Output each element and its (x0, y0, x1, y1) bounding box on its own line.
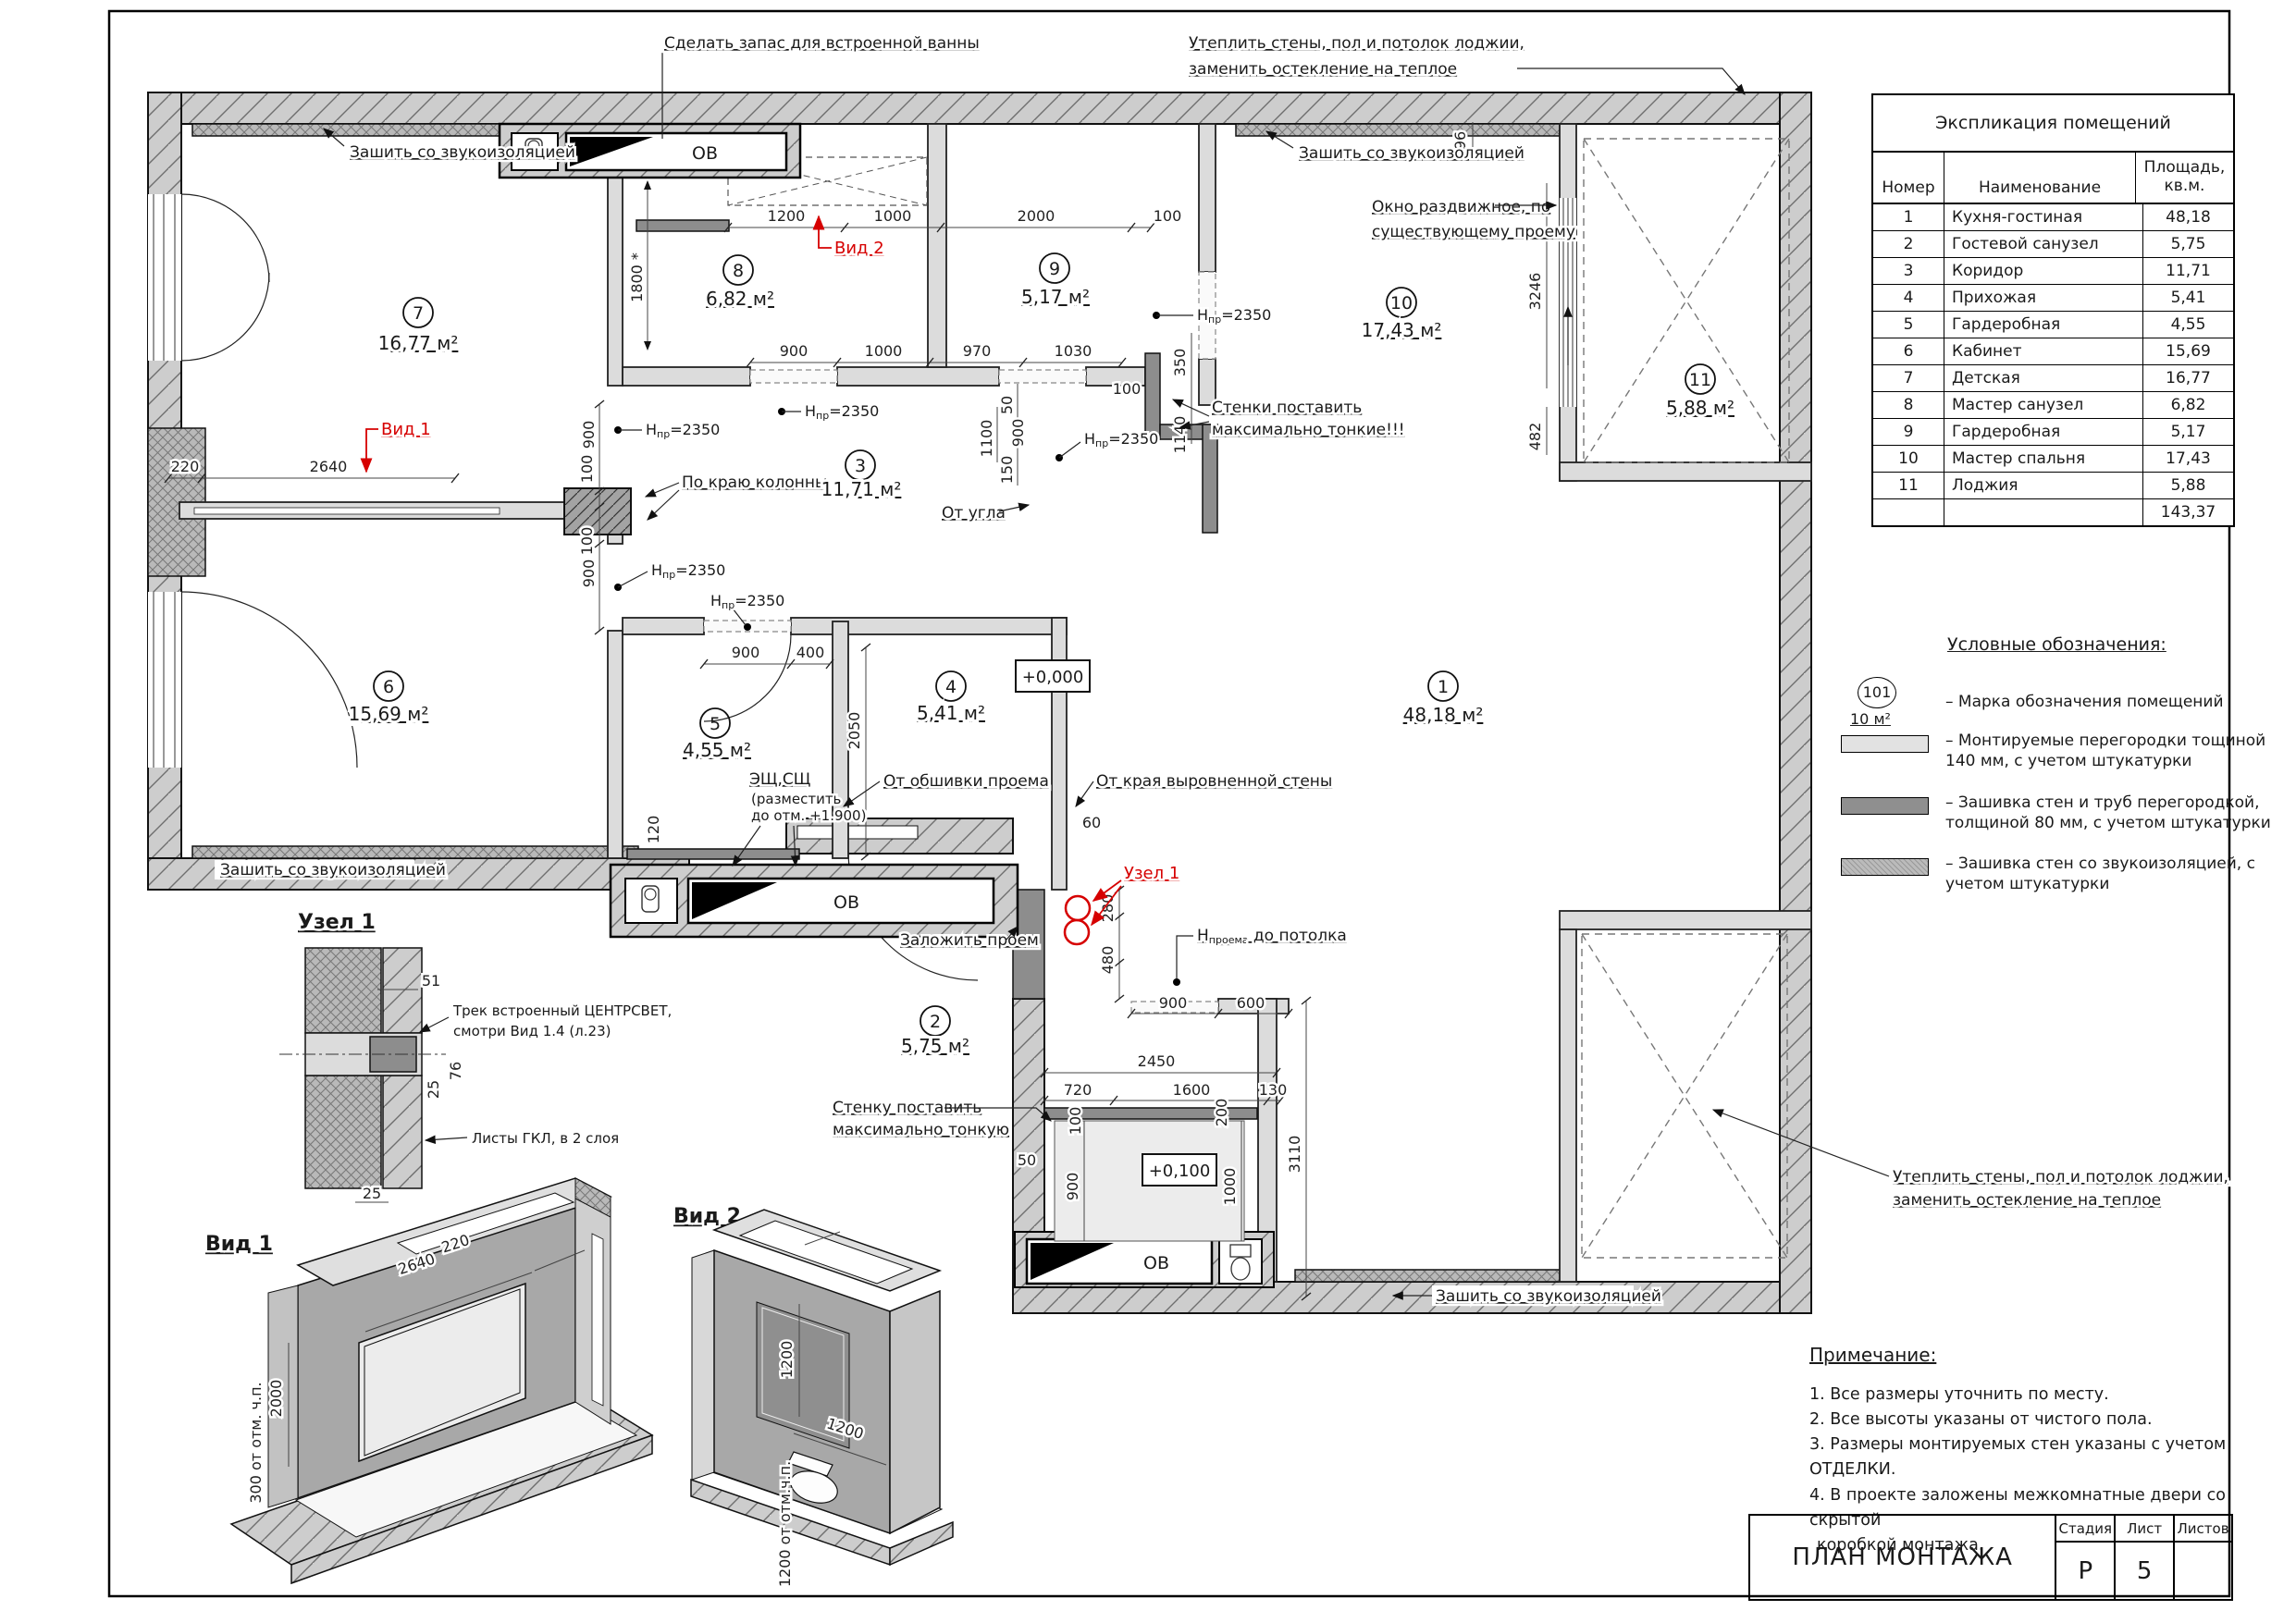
row-name: Гардеробная (1944, 312, 2143, 338)
view1-title: Вид 1 (205, 1233, 273, 1256)
row-name: Гардеробная (1944, 419, 2143, 445)
annotation-from-edge: От края выровненной стены (1096, 772, 1332, 791)
table-row: 3Коридор11,71 (1873, 258, 2233, 285)
annotation-sound: Зашить со звукоизоляцией (1436, 1287, 1661, 1306)
room-number: 9 (1049, 259, 1060, 279)
row-name: Мастер санузел (1944, 392, 2143, 418)
room-area: 5,88 м² (1666, 397, 1734, 419)
dim-label: 900 (1159, 994, 1188, 1012)
level-zero: +0,000 (1022, 668, 1084, 687)
sheet-label: Лист (2116, 1516, 2173, 1543)
note-1: 1. Все размеры уточнить по месту. (1809, 1383, 2253, 1408)
partition-light-symbol (1841, 735, 1929, 753)
dim-label: 350 (1171, 349, 1189, 377)
dim-label: 1000 (874, 207, 912, 225)
room-number: 1 (1438, 677, 1449, 697)
loggia-bottom (1582, 934, 1787, 1258)
row-num: 6 (1873, 338, 1944, 364)
room-area: 4,55 м² (683, 739, 751, 761)
view2-iso: Вид 2 1200 1200 1200 от отм.ч.п. (673, 1205, 953, 1587)
annotation-warm-top-2: заменить остекление на теплое (1189, 60, 1457, 79)
room-area: 17,43 м² (1362, 319, 1442, 341)
table-total: 143,37 (2143, 499, 2233, 525)
dim-label: 720 (1064, 1081, 1092, 1099)
dim-label: 1800 * (628, 252, 646, 302)
row-num: 2 (1873, 231, 1944, 257)
row-area: 5,75 (2143, 231, 2233, 257)
dim-label: 2450 (1138, 1052, 1176, 1070)
room-number: 5 (710, 714, 721, 734)
row-name: Лоджия (1944, 473, 2143, 498)
dim-label: 900 (1009, 419, 1027, 448)
row-area: 5,88 (2143, 473, 2233, 498)
room-mark-symbol: 101 10 м² (1841, 677, 1929, 730)
dim-label: 2000 (267, 1380, 285, 1418)
dim-label: 25 (425, 1080, 442, 1099)
row-num: 4 (1873, 285, 1944, 311)
dim-label: 51 (422, 972, 440, 990)
room-area: 5,17 м² (1021, 286, 1090, 308)
table-row: 9Гардеробная5,17 (1873, 419, 2233, 446)
partition-sound-symbol (1841, 858, 1929, 876)
table-total-row: 143,37 (1873, 499, 2233, 525)
annotation-window-1: Окно раздвижное, по (1372, 198, 1550, 216)
annotation-from-corner: От угла (942, 504, 1006, 523)
svg-text:Hпр=2350: Hпр=2350 (805, 402, 879, 422)
dim-label: 100 (578, 455, 596, 484)
annotation-sound: Зашить со звукоизоляцией (220, 861, 446, 879)
dim-label: 100 (1154, 207, 1182, 225)
annotation-bath: Сделать запас для встроенной ванны (664, 34, 980, 53)
dim-label: 130 (1259, 1081, 1288, 1099)
dim-label: 900 (580, 559, 598, 588)
dim-label: 100 (578, 527, 596, 556)
dim-label: 60 (1082, 814, 1101, 831)
dim-label: 280 (1099, 894, 1117, 923)
table-row: 11Лоджия5,88 (1873, 473, 2233, 499)
annotation-track-1: Трек встроенный ЦЕНТРСВЕТ, (452, 1002, 672, 1019)
annotation-esch-2: (разместить (751, 791, 841, 807)
row-area: 5,17 (2143, 419, 2233, 445)
table-row: 10Мастер спальня17,43 (1873, 446, 2233, 473)
explication-title: Экспликация помещений (1873, 95, 2233, 153)
row-area: 5,41 (2143, 285, 2233, 311)
node1-detail: Узел 1 51 76 25 25 Трек встроенный ЦЕНТР… (279, 911, 672, 1202)
svg-text:Hпр=2350: Hпр=2350 (710, 592, 784, 611)
dim-label: 3246 (1526, 273, 1544, 311)
view2-mark: Вид 2 (834, 239, 884, 258)
table-row: 6Кабинет15,69 (1873, 338, 2233, 365)
column (564, 488, 631, 535)
dim-label: 1000 (1221, 1168, 1239, 1206)
ov-label: ОВ (833, 892, 859, 913)
dim-label: 1100 (978, 420, 995, 458)
explication-table: Экспликация помещений Номер Наименование… (1871, 93, 2235, 527)
table-row: 4Прихожая5,41 (1873, 285, 2233, 312)
table-row: 8Мастер санузел6,82 (1873, 392, 2233, 419)
dim-label: 600 (1237, 994, 1265, 1012)
room-number: 4 (945, 677, 957, 697)
legend-item-4: – Зашивка стен со звукоизоляцией, сучето… (1945, 854, 2278, 894)
room-number: 11 (1689, 370, 1711, 390)
row-num: 9 (1873, 419, 1944, 445)
dim-label: 2640 (310, 458, 348, 475)
dim-label: 480 (1099, 946, 1117, 975)
svg-text:Hпр=2350: Hпр=2350 (646, 421, 720, 440)
legend-item-1: – Марка обозначения помещений (1945, 692, 2278, 712)
mark-area: 10 м² (1850, 710, 1929, 730)
drawing-sheet: ОВ ОВ ОВ +0,000 +0,100 (0, 0, 2296, 1623)
dim-label: 300 от отм. ч.п. (247, 1382, 265, 1503)
explication-header: Номер Наименование Площадь,кв.м. (1873, 153, 2233, 204)
annotation-thin-wall-2: максимально тонкую (833, 1121, 1009, 1139)
room-area: 11,71 м² (821, 478, 902, 500)
row-num: 7 (1873, 365, 1944, 391)
svg-text:Hпр=2350: Hпр=2350 (651, 561, 725, 581)
dim-label: 1200 (768, 207, 806, 225)
dim-label: 150 (998, 456, 1016, 485)
row-area: 6,82 (2143, 392, 2233, 418)
svg-text:Нпроема до потолка: Нпроема до потолка (1197, 927, 1347, 946)
dim-label: 1200 от отм.ч.п. (776, 1461, 794, 1587)
col-name: Наименование (1944, 153, 2136, 203)
stage-label: Стадия (2056, 1516, 2114, 1543)
annotation-esch-1: ЭЩ,СЩ (749, 770, 810, 789)
table-row: 7Детская16,77 (1873, 365, 2233, 392)
dim-label: 1140 (1171, 416, 1189, 454)
dim-label: 120 (645, 816, 662, 844)
level-100: +0,100 (1149, 1162, 1211, 1181)
row-num: 5 (1873, 312, 1944, 338)
dim-label: 900 (780, 342, 809, 360)
room-number: 2 (930, 1012, 941, 1032)
row-name: Коридор (1944, 258, 2143, 284)
sheets-label: Листов (2175, 1516, 2231, 1543)
dim-label: 76 (447, 1062, 464, 1080)
partition-dark-symbol (1841, 797, 1929, 815)
sheets-value (2175, 1543, 2231, 1599)
annotation-sound: Зашить со звукоизоляцией (1299, 144, 1524, 163)
annotation-warm-top-1: Утеплить стены, пол и потолок лоджии, (1189, 34, 1524, 53)
row-area: 15,69 (2143, 338, 2233, 364)
ov-label: ОВ (1143, 1253, 1169, 1273)
annotation-window-2: существующему проему (1372, 223, 1575, 241)
table-row: 5Гардеробная4,55 (1873, 312, 2233, 338)
dim-label: 482 (1526, 423, 1544, 451)
dim-label: 100 (1067, 1107, 1084, 1136)
dim-label: 25 (363, 1185, 381, 1202)
dim-label: 200 (1213, 1099, 1230, 1127)
row-num: 10 (1873, 446, 1944, 472)
dim-label: 1200 (778, 1341, 796, 1379)
row-area: 48,18 (2143, 204, 2233, 230)
sheet-column: Лист 5 (2116, 1516, 2175, 1599)
note-3: 3. Размеры монтируемых стен указаны с уч… (1809, 1432, 2253, 1482)
row-name: Мастер спальня (1944, 446, 2143, 472)
annotation-column-edge: По краю колонны (682, 473, 827, 492)
annotation-thin-walls-1: Стенки поставить (1212, 399, 1362, 417)
annotation-fill-opening: Заложить проем (900, 931, 1039, 950)
room-area: 48,18 м² (1403, 704, 1484, 726)
room-area: 5,75 м² (901, 1035, 969, 1057)
dim-label: 50 (1018, 1151, 1036, 1169)
row-num: 3 (1873, 258, 1944, 284)
dim-label: 400 (796, 644, 825, 661)
row-area: 16,77 (2143, 365, 2233, 391)
stage-value: Р (2056, 1543, 2114, 1599)
mark-number: 101 (1858, 677, 1896, 708)
view1-mark: Вид 1 (381, 420, 431, 439)
row-num: 11 (1873, 473, 1944, 498)
annotation-warm-bottom-2: заменить остекление на теплое (1893, 1191, 2161, 1210)
room-number: 8 (733, 261, 744, 281)
dim-label: 1000 (865, 342, 903, 360)
sheet-value: 5 (2116, 1543, 2173, 1599)
legend-item-3: – Зашивка стен и труб перегородкой,толщи… (1945, 793, 2278, 833)
node1-mark: Узел 1 (1124, 864, 1179, 883)
table-row: 2Гостевой санузел5,75 (1873, 231, 2233, 258)
room-area: 5,41 м² (917, 702, 985, 724)
legend-title: Условные обозначения: (1947, 633, 2166, 657)
row-name: Детская (1944, 365, 2143, 391)
row-area: 4,55 (2143, 312, 2233, 338)
room-number: 10 (1390, 293, 1413, 314)
row-num: 8 (1873, 392, 1944, 418)
room-number: 6 (383, 677, 394, 697)
dim-label: 900 (580, 421, 598, 449)
row-num: 1 (1873, 204, 1944, 230)
row-area: 11,71 (2143, 258, 2233, 284)
row-area: 17,43 (2143, 446, 2233, 472)
dim-label: 1600 (1173, 1081, 1211, 1099)
annotation-track-2: смотри Вид 1.4 (л.23) (453, 1023, 611, 1039)
legend-item-2: – Монтируемые перегородки тощиной140 мм,… (1945, 731, 2278, 771)
row-name: Прихожая (1944, 285, 2143, 311)
room-number: 3 (855, 456, 866, 476)
row-name: Кабинет (1944, 338, 2143, 364)
col-area: Площадь,кв.м. (2136, 153, 2233, 203)
room-area: 6,82 м² (706, 288, 774, 310)
dim-label: 900 (732, 644, 760, 661)
row-name: Гостевой санузел (1944, 231, 2143, 257)
dim-label: 2050 (846, 712, 863, 750)
dim-label: 900 (1064, 1173, 1081, 1201)
annotation-sound: Зашить со звукоизоляцией (350, 143, 575, 162)
ov-label: ОВ (692, 143, 718, 164)
stage-column: Стадия Р (2056, 1516, 2116, 1599)
vent-block-mid: ОВ (611, 865, 1018, 937)
room-area: 16,77 м² (378, 332, 459, 354)
annotation-esch-3: до отм. +1.900) (751, 807, 866, 824)
dim-label: 3110 (1286, 1136, 1303, 1174)
legend: Условные обозначения: 101 10 м² – Марка … (1841, 629, 2285, 906)
room-number: 7 (413, 303, 424, 324)
row-name: Кухня-гостиная (1944, 204, 2143, 230)
notes-title: Примечание: (1809, 1341, 2253, 1370)
col-area-1: Площадь, (2144, 159, 2226, 178)
col-area-2: кв.м. (2165, 178, 2205, 196)
svg-text:Hпр=2350: Hпр=2350 (1084, 430, 1158, 449)
annotation-gkl: Листы ГКЛ, в 2 слоя (472, 1130, 619, 1147)
sheets-column: Листов (2175, 1516, 2231, 1599)
dim-label: 220 (171, 458, 200, 475)
drawing-title: ПЛАН МОНТАЖА (1750, 1516, 2056, 1599)
annotation-from-trim: От обшивки проема (883, 772, 1049, 791)
dim-label: 970 (963, 342, 992, 360)
dim-label: 50 (998, 396, 1016, 414)
dim-label: 100 (1113, 380, 1142, 398)
room-area: 15,69 м² (349, 703, 429, 725)
annotation-warm-bottom-1: Утеплить стены, пол и потолок лоджии, (1893, 1168, 2228, 1187)
title-block: ПЛАН МОНТАЖА Стадия Р Лист 5 Листов (1748, 1514, 2233, 1601)
node1-title: Узел 1 (298, 911, 376, 934)
dim-label: 2000 (1018, 207, 1055, 225)
view1-iso: Вид 1 2640 220 2000 300 от отм. ч.п. (205, 1178, 652, 1583)
note-2: 2. Все высоты указаны от чистого пола. (1809, 1408, 2253, 1432)
table-row: 1Кухня-гостиная48,18 (1873, 204, 2233, 231)
dim-label: 1030 (1055, 342, 1092, 360)
annotation-thin-walls-2: максимально тонкие!!! (1212, 421, 1405, 439)
col-number: Номер (1873, 153, 1944, 203)
